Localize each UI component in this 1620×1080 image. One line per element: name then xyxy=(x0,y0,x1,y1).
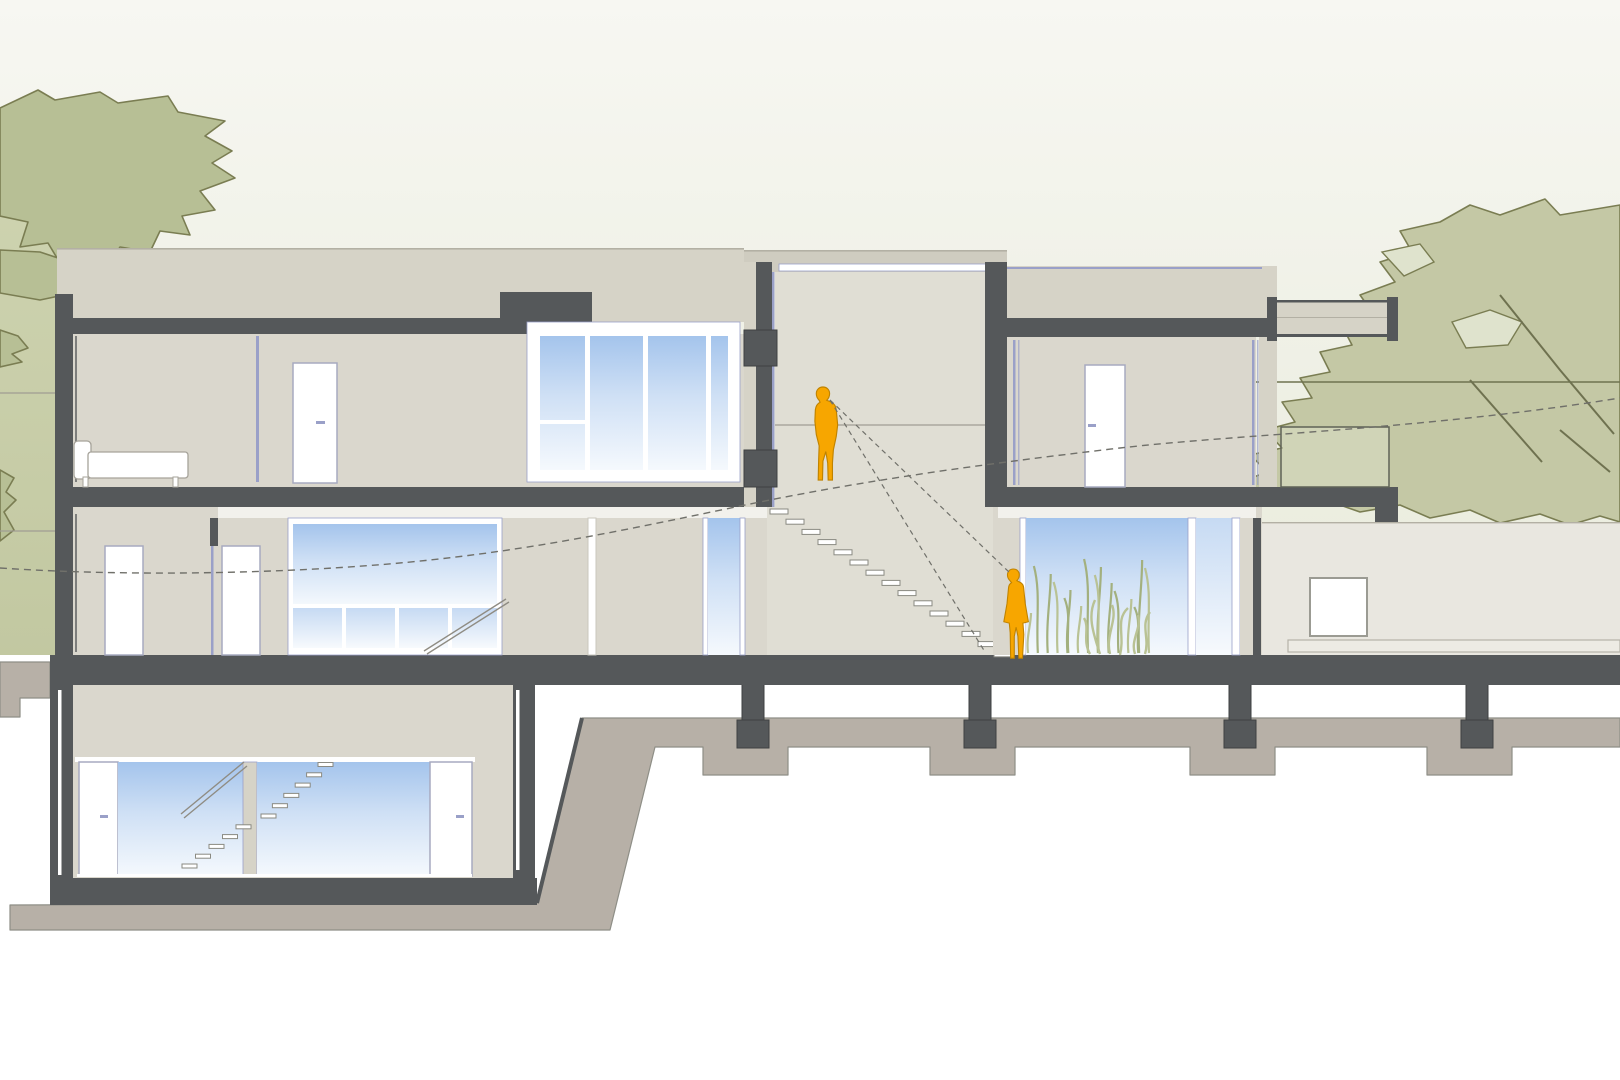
stair-hall xyxy=(744,250,1020,657)
upper-floor-window xyxy=(527,322,740,482)
pier-footing xyxy=(1224,720,1256,748)
beam-section-lower xyxy=(744,450,777,487)
garden-window-pier xyxy=(1240,518,1253,655)
stair-tread xyxy=(209,844,224,848)
right-wing-parapet-glazing-line xyxy=(1007,267,1262,269)
stair-tread xyxy=(898,591,916,596)
basement-door-right-handle-icon xyxy=(456,815,464,818)
right-wing-parapet xyxy=(1007,266,1277,320)
basement-glazed-wall xyxy=(77,762,472,877)
stair-tread xyxy=(914,601,932,606)
right-wing-roof-slab xyxy=(985,318,1277,337)
stair-tread xyxy=(182,864,197,868)
stair-tread xyxy=(261,814,276,818)
garden-room-soffit xyxy=(998,507,1256,518)
stair-tread xyxy=(850,560,868,565)
basement-door-left xyxy=(79,762,118,876)
stair-tread xyxy=(930,611,948,616)
beam-section-upper xyxy=(744,330,777,366)
stair-tread xyxy=(818,540,836,545)
stair-tread xyxy=(946,621,964,626)
basement-glazing-sill xyxy=(77,874,472,877)
ground-floor-soffit xyxy=(218,507,767,518)
garden-wall-cut-line xyxy=(1253,518,1261,655)
garden-window xyxy=(1020,518,1240,655)
upper-floor-room-right xyxy=(1007,337,1256,487)
window-mullion-2 xyxy=(395,608,399,648)
pier-column xyxy=(742,683,764,722)
intermediate-floor-slab xyxy=(57,487,770,507)
window-edge-line-left-2 xyxy=(1018,340,1020,485)
stair-tread xyxy=(834,550,852,555)
window-transom xyxy=(540,420,588,424)
bed-leg-left xyxy=(83,477,88,487)
window-mullion-3 xyxy=(448,608,452,648)
stair-tread xyxy=(295,783,310,787)
window-edge-line-right xyxy=(1252,340,1255,485)
left-wing-parapet xyxy=(57,248,744,322)
canopy-body xyxy=(1277,300,1387,337)
basement-wall-left-cavity xyxy=(58,690,62,875)
stair-tread xyxy=(307,773,322,777)
hall-upper-volume xyxy=(775,272,993,507)
ground-floor-slot-window xyxy=(703,518,745,655)
hall-left-pier xyxy=(744,262,777,507)
basement-door-right xyxy=(430,762,472,876)
wall-inner-face-line-lower xyxy=(75,514,77,652)
pier-2 xyxy=(964,683,996,748)
balcony-glass-railing xyxy=(1281,427,1389,487)
ground-floor-window xyxy=(288,518,509,655)
garden-window-glass-2 xyxy=(1196,518,1232,655)
canopy-bottom-edge xyxy=(1277,334,1387,337)
basement-glazing-head xyxy=(75,757,475,762)
interior-glass-line xyxy=(211,546,214,655)
pier-4 xyxy=(1461,683,1493,748)
pier-footing xyxy=(737,720,769,748)
stair-tread xyxy=(802,529,820,534)
bed-leg-right xyxy=(173,477,178,487)
pier-footing xyxy=(1461,720,1493,748)
right-wing-wall-left xyxy=(985,262,1007,507)
basement-floor-slab xyxy=(50,878,537,905)
stair-tread xyxy=(962,631,980,636)
stair-tread xyxy=(223,835,238,839)
ground-floor-slab xyxy=(50,655,1620,685)
window-mullion-3 xyxy=(706,336,711,470)
bed-mattress xyxy=(88,452,188,478)
upper-floor-door xyxy=(293,363,337,483)
right-wing-end-wall xyxy=(1259,337,1277,487)
garden-window-frame-right xyxy=(1232,518,1240,655)
ground-floor-door-1 xyxy=(105,546,143,655)
clerestory-glazing xyxy=(779,264,992,271)
interior-glass-partition xyxy=(256,336,259,482)
window-mullion-1 xyxy=(585,336,590,470)
window-glass xyxy=(540,336,728,470)
upper-floor-door-right-handle-icon xyxy=(1088,424,1096,427)
basement-window-mullion xyxy=(243,762,257,876)
pier-column xyxy=(1466,683,1488,722)
window-edge-line-left xyxy=(1013,340,1016,485)
canopy-end-cap xyxy=(1387,297,1398,341)
stair-tread xyxy=(866,570,884,575)
terrace-wall-top-edge xyxy=(1262,522,1620,523)
basement xyxy=(50,657,537,905)
right-wing-floor-slab xyxy=(985,487,1390,507)
upper-floor-door-handle-icon xyxy=(316,421,325,424)
pier-footing xyxy=(964,720,996,748)
stair-tread xyxy=(786,519,804,524)
interior-wall-stub xyxy=(210,518,218,546)
stair-tread xyxy=(272,804,287,808)
canopy-top-edge xyxy=(1277,300,1387,303)
stair-tread xyxy=(236,825,251,829)
slot-window-frame-left xyxy=(703,518,708,655)
pier-column xyxy=(1229,683,1251,722)
basement-window-right-glass xyxy=(257,762,430,876)
window-edge-line-right-2 xyxy=(1257,340,1259,485)
terrace-bench-ledge xyxy=(1288,640,1620,652)
garden-window-mullion xyxy=(1188,518,1196,655)
ground-floor-door-2 xyxy=(222,546,260,655)
canopy-connector xyxy=(1267,297,1277,341)
section-drawing xyxy=(0,0,1620,1080)
window-transom xyxy=(293,604,497,608)
stair-tread xyxy=(196,854,211,858)
window-mullion-2 xyxy=(643,336,648,470)
pier-1 xyxy=(737,683,769,748)
stair-tread xyxy=(882,580,900,585)
slot-window-glass xyxy=(708,518,740,655)
basement-door-left-handle-icon xyxy=(100,815,108,818)
window-glass-upper xyxy=(293,524,497,606)
stair-tread xyxy=(770,509,788,514)
terrace-wall-opening xyxy=(1310,578,1367,636)
stair-tread xyxy=(284,793,299,797)
stair-tread xyxy=(318,763,333,767)
pier-column xyxy=(969,683,991,722)
left-wing-roof-slab xyxy=(57,318,507,334)
floor-slab-downstand xyxy=(1375,487,1398,523)
window-mullion-1 xyxy=(342,608,346,648)
left-wing xyxy=(55,248,770,655)
architectural-section-canvas xyxy=(0,0,1620,1080)
pier-3 xyxy=(1224,683,1256,748)
left-wing-parapet-edge xyxy=(57,248,744,250)
balcony-canopy xyxy=(1267,297,1398,341)
hall-rear-parapet-edge xyxy=(744,250,1007,252)
garden-terrace xyxy=(1262,522,1620,655)
basement-wall-right-cavity xyxy=(516,690,520,870)
exterior-wall-left xyxy=(55,294,73,655)
door-jamb-strip xyxy=(588,518,596,655)
slot-window-frame-right xyxy=(740,518,745,655)
canopy-joint-line xyxy=(1277,317,1387,318)
